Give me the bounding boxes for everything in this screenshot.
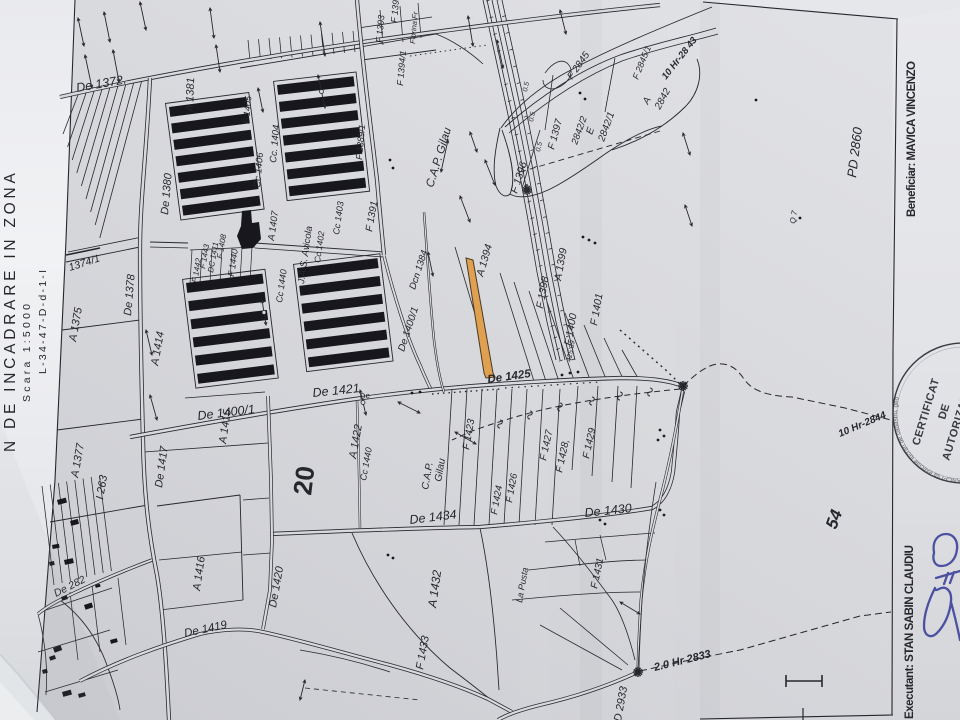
svg-text:Beneficiar: MAVICA VINCENZO: Beneficiar: MAVICA VINCENZO [906,61,918,217]
svg-text:Scara 1:5000: Scara 1:5000 [21,304,33,402]
svg-text:20: 20 [287,464,320,496]
svg-text:L-34-47-D-d-1-I: L-34-47-D-d-1-I [37,270,49,374]
svg-text:Executant: STAN SABIN CLAUDIU: Executant: STAN SABIN CLAUDIU [904,545,916,719]
svg-text:A 1381: A 1381 [184,77,197,113]
svg-text:De: De [359,391,371,401]
